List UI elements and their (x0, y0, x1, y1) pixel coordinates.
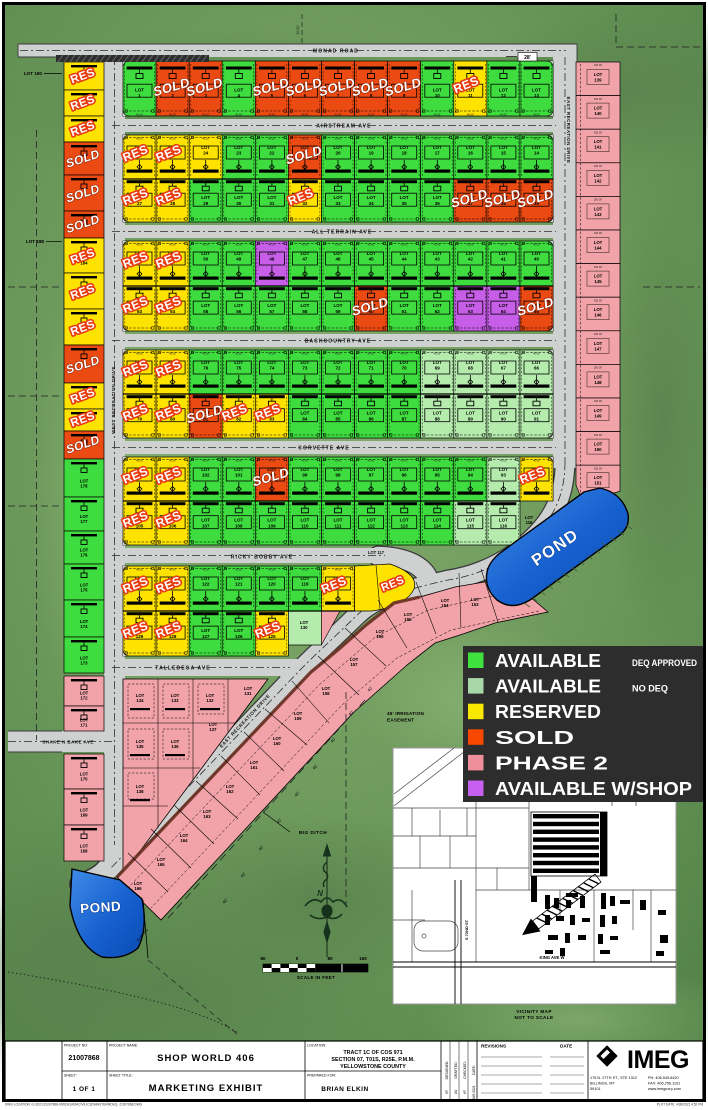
svg-text:RICKY BOBBY AVE: RICKY BOBBY AVE (231, 555, 293, 561)
svg-text:175: 175 (80, 587, 88, 592)
svg-text:40.00': 40.00' (500, 242, 507, 246)
svg-text:24: 24 (203, 151, 209, 156)
svg-text:40.00': 40.00' (169, 395, 176, 399)
svg-text:108: 108 (235, 523, 243, 528)
svg-text:40.00': 40.00' (467, 351, 474, 355)
svg-text:86: 86 (369, 416, 375, 421)
svg-text:40.00': 40.00' (368, 395, 375, 399)
svg-text:40.00': 40.00' (301, 180, 308, 184)
svg-text:LOT 190: LOT 190 (24, 71, 43, 76)
svg-text:80: 80 (327, 956, 333, 961)
svg-text:111: 111 (335, 523, 343, 528)
svg-text:LOT 188: LOT 188 (26, 239, 45, 244)
svg-text:40.00': 40.00' (401, 136, 408, 140)
svg-text:21007868: 21007868 (68, 1055, 99, 1062)
svg-text:MARKETING EXHIBIT: MARKETING EXHIBIT (149, 1083, 264, 1094)
svg-text:DESIGNED:: DESIGNED: (445, 1061, 449, 1080)
svg-text:100.00': 100.00' (594, 433, 603, 437)
svg-text:LOT: LOT (400, 303, 409, 308)
svg-text:168: 168 (80, 848, 88, 853)
svg-text:40.00': 40.00' (467, 180, 474, 184)
svg-text:LOT: LOT (135, 87, 144, 92)
svg-text:SHAKE N BAKE AVE: SHAKE N BAKE AVE (42, 740, 94, 745)
svg-text:23: 23 (236, 151, 242, 156)
svg-text:162: 162 (226, 789, 234, 794)
svg-text:40.00': 40.00' (401, 502, 408, 506)
svg-text:84: 84 (302, 416, 308, 421)
svg-text:40.00': 40.00' (268, 458, 275, 462)
svg-text:40.00': 40.00' (169, 136, 176, 140)
svg-text:134: 134 (136, 698, 144, 703)
svg-text:100.00': 100.00' (594, 231, 603, 235)
svg-text:58: 58 (302, 309, 308, 314)
svg-text:40.00': 40.00' (235, 242, 242, 246)
svg-text:70: 70 (402, 366, 408, 371)
svg-text:BACKCOUNTRY AVE: BACKCOUNTRY AVE (305, 339, 372, 345)
svg-text:19: 19 (369, 151, 375, 156)
svg-text:131: 131 (244, 691, 252, 696)
svg-text:35: 35 (402, 201, 408, 206)
svg-text:100.00': 100.00' (594, 399, 603, 403)
svg-text:43: 43 (435, 257, 441, 262)
svg-text:LOT: LOT (594, 139, 603, 144)
svg-text:40.00': 40.00' (202, 567, 209, 571)
svg-text:LOT: LOT (594, 240, 603, 245)
svg-text:www.imegcorp.com: www.imegcorp.com (648, 1087, 681, 1091)
svg-text:173: 173 (80, 660, 88, 665)
svg-text:ALL TERRAIN AVE: ALL TERRAIN AVE (312, 230, 373, 236)
svg-text:LOT: LOT (334, 195, 343, 200)
svg-text:40.00': 40.00' (235, 136, 242, 140)
svg-text:151: 151 (594, 481, 602, 486)
svg-text:40.00': 40.00' (301, 136, 308, 140)
svg-text:40.00': 40.00' (268, 136, 275, 140)
svg-text:CHECKED:: CHECKED: (463, 1061, 467, 1079)
svg-text:40.00': 40.00' (268, 242, 275, 246)
svg-text:64: 64 (501, 309, 507, 314)
svg-text:40.00': 40.00' (467, 458, 474, 462)
svg-text:40.00': 40.00' (335, 287, 342, 291)
svg-text:40.00': 40.00' (401, 242, 408, 246)
svg-text:LOT: LOT (466, 411, 475, 416)
svg-text:170: 170 (80, 777, 88, 782)
svg-text:107: 107 (202, 523, 210, 528)
svg-text:40.00': 40.00' (268, 287, 275, 291)
svg-text:LOT: LOT (234, 87, 243, 92)
svg-text:40.00': 40.00' (500, 458, 507, 462)
svg-text:127: 127 (202, 634, 210, 639)
svg-text:40.00': 40.00' (335, 351, 342, 355)
svg-text:101: 101 (235, 473, 243, 478)
svg-text:158: 158 (322, 691, 330, 696)
svg-text:40.00': 40.00' (467, 136, 474, 140)
svg-text:LOT: LOT (594, 442, 603, 447)
svg-text:28': 28' (524, 55, 531, 61)
svg-text:146: 146 (594, 313, 602, 318)
svg-text:44: 44 (402, 257, 408, 262)
svg-text:WEST RECREATION DRIVE: WEST RECREATION DRIVE (111, 366, 116, 434)
svg-text:40.00': 40.00' (335, 458, 342, 462)
svg-text:PREPARED FOR:: PREPARED FOR: (307, 1074, 336, 1078)
svg-text:132: 132 (206, 698, 214, 703)
svg-text:40.00': 40.00' (169, 113, 176, 117)
svg-text:40.00': 40.00' (268, 351, 275, 355)
svg-text:40.00': 40.00' (169, 567, 176, 571)
svg-text:89: 89 (468, 416, 474, 421)
svg-text:40.00': 40.00' (301, 351, 308, 355)
svg-text:LOT: LOT (201, 628, 210, 633)
svg-text:LOT: LOT (367, 411, 376, 416)
svg-text:91: 91 (534, 416, 540, 421)
svg-text:40.00': 40.00' (467, 395, 474, 399)
svg-text:40.00': 40.00' (202, 612, 209, 616)
svg-text:40.00': 40.00' (434, 242, 441, 246)
svg-text:40.00': 40.00' (434, 502, 441, 506)
svg-text:BIG DITCH: BIG DITCH (299, 830, 327, 836)
svg-text:137: 137 (209, 727, 217, 732)
svg-text:126: 126 (235, 634, 243, 639)
svg-text:100.00': 100.00' (594, 466, 603, 470)
svg-text:100.00': 100.00' (594, 332, 603, 336)
svg-text:AVAILABLE: AVAILABLE (495, 676, 601, 697)
svg-text:DRAFTED:: DRAFTED: (454, 1061, 458, 1078)
svg-text:LOT: LOT (367, 518, 376, 523)
svg-text:40.00': 40.00' (368, 458, 375, 462)
svg-text:PROJECT NAME:: PROJECT NAME: (109, 1044, 138, 1048)
svg-text:VICINITY MAP: VICINITY MAP (516, 1009, 552, 1014)
svg-text:176: 176 (80, 552, 88, 557)
svg-text:139: 139 (594, 78, 602, 83)
svg-text:40.00': 40.00' (136, 351, 143, 355)
svg-text:50: 50 (203, 257, 209, 262)
svg-text:40.00': 40.00' (401, 458, 408, 462)
svg-text:LOT: LOT (201, 303, 210, 308)
svg-text:40.00': 40.00' (368, 136, 375, 140)
svg-text:154: 154 (441, 603, 449, 608)
svg-text:DATE: DATE (560, 1044, 572, 1049)
svg-text:PH: 406.545.6420: PH: 406.545.6420 (648, 1076, 679, 1080)
svg-text:85: 85 (336, 416, 342, 421)
svg-text:SCALE IN FEET: SCALE IN FEET (297, 975, 335, 980)
svg-text:CORVETTE AVE: CORVETTE AVE (298, 446, 349, 452)
svg-text:175 N. 27TH ST., STE 1312: 175 N. 27TH ST., STE 1312 (590, 1076, 637, 1080)
svg-text:30: 30 (236, 201, 242, 206)
svg-text:119: 119 (301, 582, 309, 587)
svg-text:40.00': 40.00' (268, 612, 275, 616)
svg-text:40.00': 40.00' (335, 567, 342, 571)
svg-text:40.00': 40.00' (301, 287, 308, 291)
svg-text:59101: 59101 (590, 1087, 601, 1091)
svg-text:REVISIONS: REVISIONS (481, 1044, 506, 1049)
svg-text:40.00': 40.00' (500, 136, 507, 140)
svg-text:LOT: LOT (499, 411, 508, 416)
svg-text:LOT: LOT (300, 518, 309, 523)
svg-text:40.00': 40.00' (368, 502, 375, 506)
svg-text:40.00': 40.00' (533, 458, 540, 462)
svg-text:40.00': 40.00' (335, 113, 342, 117)
svg-text:40.00': 40.00' (136, 242, 143, 246)
svg-text:40.00': 40.00' (235, 458, 242, 462)
svg-text:40.00': 40.00' (202, 136, 209, 140)
svg-text:LOT: LOT (594, 173, 603, 178)
svg-text:LOT: LOT (234, 195, 243, 200)
svg-text:LOT: LOT (594, 475, 603, 480)
svg-text:LOT: LOT (594, 274, 603, 279)
svg-text:MAR 2021: MAR 2021 (472, 1085, 476, 1100)
svg-text:110: 110 (301, 523, 309, 528)
svg-text:121: 121 (235, 582, 243, 587)
svg-text:LOT: LOT (499, 87, 508, 92)
svg-text:135: 135 (136, 744, 144, 749)
svg-text:40.00': 40.00' (335, 180, 342, 184)
svg-text:LOT: LOT (234, 303, 243, 308)
svg-text:LOT 117: LOT 117 (368, 550, 385, 555)
svg-text:49: 49 (236, 257, 242, 262)
svg-text:143: 143 (594, 212, 602, 217)
svg-text:66: 66 (534, 366, 540, 371)
svg-text:171: 171 (80, 723, 88, 728)
svg-text:40.00': 40.00' (202, 287, 209, 291)
svg-text:LOT: LOT (594, 408, 603, 413)
svg-text:40.00': 40.00' (136, 287, 143, 291)
svg-text:40.00': 40.00' (500, 287, 507, 291)
svg-text:29: 29 (203, 201, 209, 206)
svg-text:40.00': 40.00' (301, 113, 308, 117)
svg-text:33: 33 (336, 201, 342, 206)
svg-text:36: 36 (435, 201, 441, 206)
svg-text:40.00': 40.00' (235, 567, 242, 571)
svg-text:141: 141 (594, 145, 602, 150)
svg-text:95: 95 (435, 473, 441, 478)
svg-text:TRACT 1C OF COS 971: TRACT 1C OF COS 971 (343, 1050, 402, 1056)
svg-text:LOT: LOT (267, 303, 276, 308)
svg-text:140: 140 (594, 111, 602, 116)
svg-text:42: 42 (468, 257, 474, 262)
svg-text:40.00': 40.00' (169, 180, 176, 184)
svg-text:LOT: LOT (300, 411, 309, 416)
svg-text:40.00': 40.00' (202, 395, 209, 399)
svg-text:POND: POND (80, 899, 122, 917)
svg-text:40.00': 40.00' (136, 612, 143, 616)
svg-text:96: 96 (402, 473, 408, 478)
svg-text:40.00': 40.00' (169, 502, 176, 506)
svg-text:AVAILABLE W/SHOP: AVAILABLE W/SHOP (495, 778, 692, 799)
svg-text:40.00': 40.00' (467, 502, 474, 506)
svg-text:80: 80 (260, 956, 266, 961)
svg-text:LOT: LOT (466, 303, 475, 308)
svg-text:174: 174 (80, 624, 88, 629)
svg-text:LOT: LOT (300, 303, 309, 308)
svg-text:155: 155 (404, 617, 412, 622)
svg-text:45: 45 (369, 257, 375, 262)
svg-text:45' IRRIGATION: 45' IRRIGATION (387, 711, 424, 716)
svg-text:40.00': 40.00' (202, 502, 209, 506)
svg-text:LOT: LOT (532, 411, 541, 416)
svg-text:57: 57 (269, 309, 275, 314)
svg-text:116: 116 (526, 520, 533, 525)
svg-text:40.00': 40.00' (434, 287, 441, 291)
svg-text:SHEET TITLE:: SHEET TITLE: (109, 1074, 133, 1078)
svg-text:63: 63 (468, 309, 474, 314)
svg-text:LOT: LOT (594, 106, 603, 111)
svg-text:40.00': 40.00' (368, 113, 375, 117)
svg-text:100.00': 100.00' (594, 164, 603, 168)
svg-text:102: 102 (202, 473, 210, 478)
svg-text:161: 161 (250, 765, 258, 770)
svg-text:LOT: LOT (594, 374, 603, 379)
svg-text:PLOT DATE: 4/30/2021 4:52 PM: PLOT DATE: 4/30/2021 4:52 PM (657, 1103, 703, 1107)
svg-text:LOT: LOT (499, 303, 508, 308)
svg-text:40.00': 40.00' (533, 136, 540, 140)
svg-text:40.00': 40.00' (533, 242, 540, 246)
svg-text:LOT: LOT (499, 518, 508, 523)
svg-text:40.00': 40.00' (335, 136, 342, 140)
svg-text:169: 169 (80, 812, 88, 817)
svg-text:40.00': 40.00' (235, 502, 242, 506)
svg-text:40.00': 40.00' (202, 242, 209, 246)
svg-text:LOT: LOT (594, 206, 603, 211)
svg-text:90: 90 (501, 416, 507, 421)
svg-text:172: 172 (80, 696, 88, 701)
svg-text:40.00': 40.00' (368, 180, 375, 184)
svg-text:136: 136 (171, 744, 179, 749)
svg-text:40.00': 40.00' (169, 242, 176, 246)
svg-text:40.00': 40.00' (136, 458, 143, 462)
svg-text:109: 109 (268, 523, 276, 528)
svg-text:40.00': 40.00' (368, 351, 375, 355)
svg-text:99: 99 (302, 473, 308, 478)
svg-text:40.00': 40.00' (235, 113, 242, 117)
svg-text:LOT: LOT (201, 518, 210, 523)
svg-text:KF: KF (463, 1090, 467, 1094)
svg-text:LOT: LOT (334, 303, 343, 308)
svg-text:115: 115 (467, 523, 475, 528)
svg-text:40.00': 40.00' (533, 351, 540, 355)
svg-text:40.00': 40.00' (434, 458, 441, 462)
svg-text:18: 18 (402, 151, 408, 156)
svg-text:40.00': 40.00' (467, 242, 474, 246)
svg-text:87: 87 (402, 416, 408, 421)
svg-text:153: 153 (471, 602, 479, 607)
svg-text:1 OF 1: 1 OF 1 (73, 1086, 96, 1093)
svg-text:LOCATION:: LOCATION: (307, 1044, 326, 1048)
svg-text:LOT: LOT (334, 518, 343, 523)
svg-text:68: 68 (468, 366, 474, 371)
svg-text:40.00': 40.00' (169, 351, 176, 355)
svg-text:LOT: LOT (334, 411, 343, 416)
svg-text:BILLINGS, MT: BILLINGS, MT (590, 1082, 615, 1086)
svg-text:LOT: LOT (400, 195, 409, 200)
svg-text:PROJECT NO:: PROJECT NO: (64, 1044, 88, 1048)
svg-text:133: 133 (171, 698, 179, 703)
svg-text:40.00': 40.00' (401, 113, 408, 117)
svg-text:71: 71 (369, 366, 375, 371)
svg-text:31: 31 (269, 201, 275, 206)
svg-text:40.00': 40.00' (235, 180, 242, 184)
svg-text:LOT: LOT (594, 307, 603, 312)
svg-text:40.00': 40.00' (434, 180, 441, 184)
svg-text:IMEG: IMEG (627, 1046, 689, 1074)
svg-text:150: 150 (594, 447, 602, 452)
svg-text:10.00': 10.00' (296, 25, 300, 34)
svg-text:40.00': 40.00' (268, 395, 275, 399)
svg-text:120: 120 (268, 582, 276, 587)
svg-text:17: 17 (435, 151, 441, 156)
svg-text:LOT: LOT (267, 195, 276, 200)
svg-text:40.00': 40.00' (434, 351, 441, 355)
svg-text:LOT: LOT (400, 411, 409, 416)
svg-text:40.00': 40.00' (434, 395, 441, 399)
svg-text:114: 114 (434, 523, 442, 528)
svg-text:159: 159 (294, 716, 302, 721)
svg-text:69: 69 (435, 366, 441, 371)
svg-text:40.00': 40.00' (368, 242, 375, 246)
svg-text:40.00': 40.00' (401, 395, 408, 399)
svg-text:100.00': 100.00' (594, 265, 603, 269)
svg-text:LOT: LOT (433, 411, 442, 416)
svg-text:40.00': 40.00' (533, 113, 540, 117)
svg-text:88: 88 (435, 416, 441, 421)
svg-text:61: 61 (402, 309, 408, 314)
svg-text:40.00': 40.00' (500, 502, 507, 506)
svg-text:SHEET:: SHEET: (64, 1074, 77, 1078)
svg-text:40.00': 40.00' (136, 502, 143, 506)
svg-text:40.00': 40.00' (533, 395, 540, 399)
svg-text:40: 40 (534, 257, 540, 262)
svg-text:RESERVED: RESERVED (495, 701, 601, 722)
svg-text:100.00': 100.00' (594, 366, 603, 370)
svg-text:122: 122 (202, 582, 210, 587)
svg-text:97: 97 (369, 473, 375, 478)
svg-text:72: 72 (336, 366, 342, 371)
svg-text:40.00': 40.00' (533, 180, 540, 184)
svg-text:94: 94 (468, 473, 474, 478)
svg-text:40.00': 40.00' (500, 113, 507, 117)
svg-text:47: 47 (302, 257, 308, 262)
svg-text:LOT: LOT (433, 303, 442, 308)
svg-text:138: 138 (136, 789, 144, 794)
svg-text:145: 145 (594, 279, 602, 284)
svg-text:40.00': 40.00' (301, 395, 308, 399)
svg-text:DEQ APPROVED: DEQ APPROVED (632, 658, 697, 669)
svg-text:40.00': 40.00' (500, 395, 507, 399)
svg-text:100.00': 100.00' (594, 130, 603, 134)
svg-text:40.00': 40.00' (434, 136, 441, 140)
svg-text:59: 59 (336, 309, 342, 314)
svg-text:40.00': 40.00' (434, 113, 441, 117)
svg-text:177: 177 (80, 519, 88, 524)
svg-text:75: 75 (236, 366, 242, 371)
svg-text:22: 22 (269, 151, 275, 156)
svg-text:40.00': 40.00' (368, 287, 375, 291)
svg-text:93: 93 (501, 473, 507, 478)
svg-text:DWG LOCATION: G:\2021\21007868: DWG LOCATION: G:\2021\21007868-000\DESIG… (5, 1103, 143, 1107)
svg-text:SHOP WORLD 406: SHOP WORLD 406 (157, 1053, 255, 1064)
svg-text:46: 46 (336, 257, 342, 262)
svg-text:40.00': 40.00' (301, 242, 308, 246)
svg-text:40.00': 40.00' (169, 458, 176, 462)
svg-text:LOT: LOT (594, 341, 603, 346)
svg-text:144: 144 (594, 246, 602, 251)
svg-text:40.00': 40.00' (301, 567, 308, 571)
svg-text:LOT: LOT (201, 195, 210, 200)
svg-text:34: 34 (369, 201, 375, 206)
svg-text:PHASE 2: PHASE 2 (495, 752, 608, 773)
svg-text:142: 142 (594, 178, 602, 183)
svg-text:LOT: LOT (234, 518, 243, 523)
svg-text:S 72ND ST: S 72ND ST (464, 919, 469, 940)
svg-text:98: 98 (336, 473, 342, 478)
